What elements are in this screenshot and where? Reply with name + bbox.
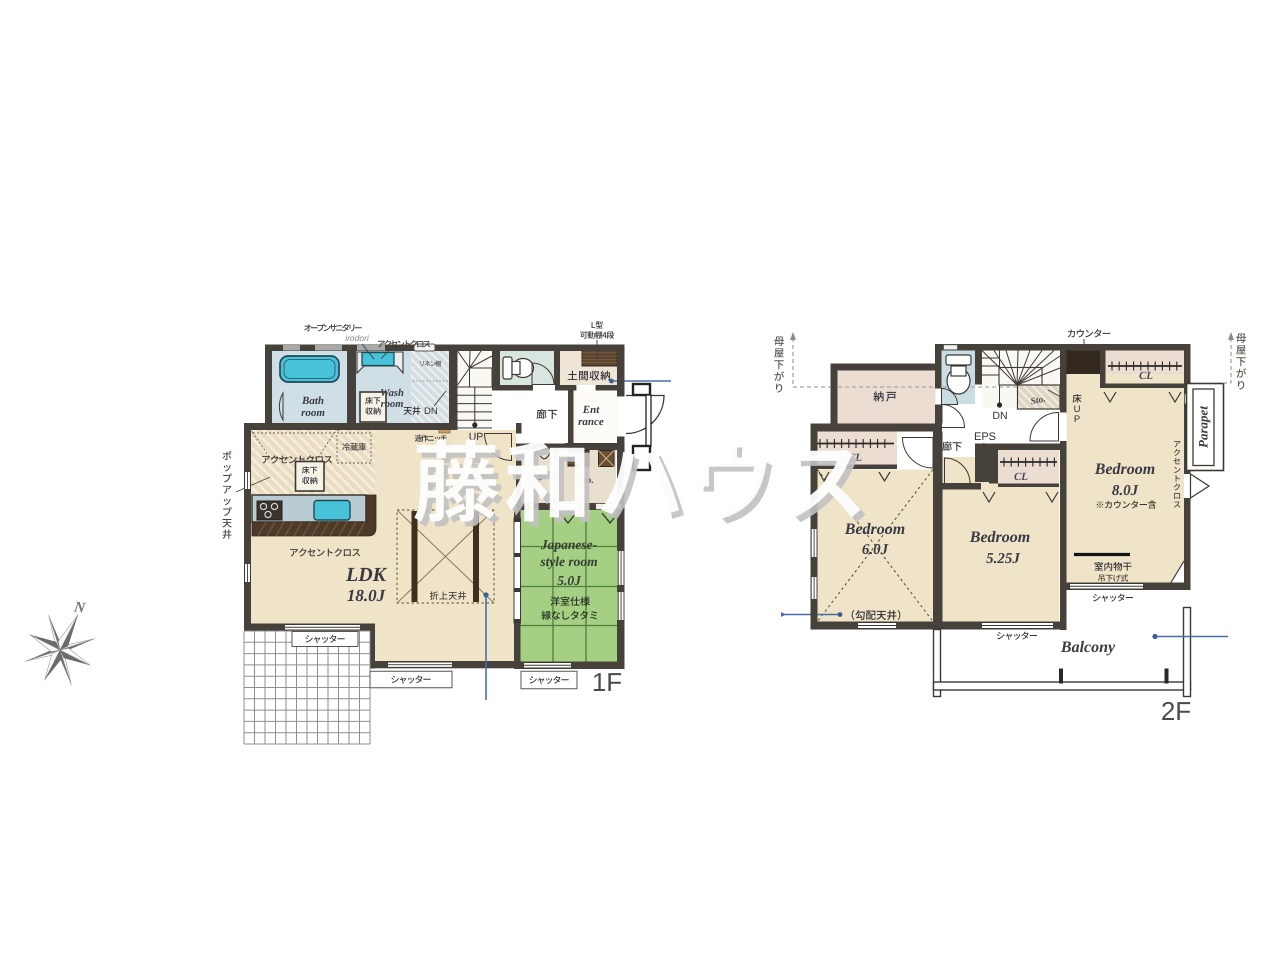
svg-text:irodori: irodori — [345, 333, 370, 343]
svg-text:room: room — [381, 399, 404, 410]
svg-text:Parapet: Parapet — [1196, 406, 1211, 448]
svg-text:N: N — [72, 599, 87, 617]
svg-text:Japanese-: Japanese- — [540, 537, 598, 552]
svg-text:CL: CL — [1014, 471, 1028, 483]
svg-text:Bath: Bath — [301, 395, 324, 407]
svg-text:EPS: EPS — [974, 431, 996, 443]
svg-text:DN: DN — [424, 406, 438, 417]
svg-text:2F: 2F — [1161, 696, 1191, 726]
svg-text:Balcony: Balcony — [1060, 639, 1116, 656]
svg-text:LDK: LDK — [345, 564, 388, 586]
svg-text:room: room — [301, 407, 325, 419]
svg-text:8.0J: 8.0J — [1112, 483, 1139, 499]
svg-text:DN: DN — [992, 410, 1007, 422]
svg-text:CL: CL — [1139, 370, 1153, 382]
svg-text:Bedroom: Bedroom — [1094, 461, 1155, 478]
svg-text:6.0J: 6.0J — [862, 542, 889, 558]
svg-text:Ent: Ent — [582, 404, 600, 416]
svg-text:Bedroom: Bedroom — [844, 521, 905, 538]
svg-text:5.25J: 5.25J — [986, 551, 1020, 567]
svg-text:Bedroom: Bedroom — [969, 529, 1030, 546]
svg-text:1F: 1F — [592, 667, 622, 697]
svg-text:5.0J: 5.0J — [557, 573, 582, 588]
svg-text:rance: rance — [578, 416, 604, 428]
svg-text:Wash: Wash — [380, 388, 404, 399]
svg-text:style room: style room — [539, 554, 597, 569]
svg-text:P: P — [1074, 414, 1080, 425]
svg-text:18.0J: 18.0J — [347, 586, 386, 605]
